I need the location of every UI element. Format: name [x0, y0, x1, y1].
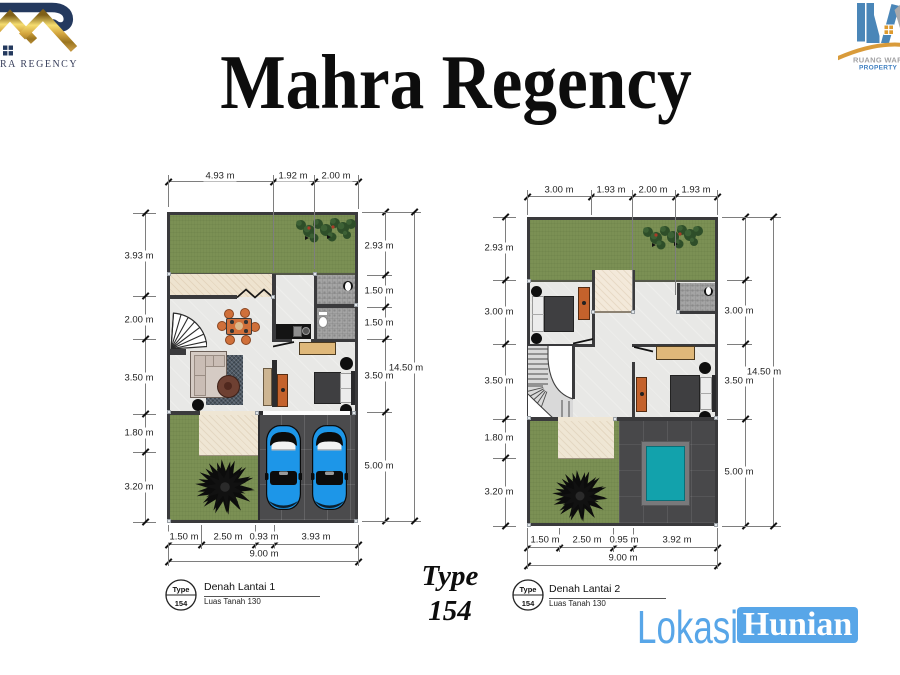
svg-text:RA REGENCY: RA REGENCY — [0, 59, 78, 70]
svg-text:PROPERTY: PROPERTY — [859, 65, 898, 72]
svg-text:154: 154 — [174, 599, 187, 608]
svg-text:Type: Type — [172, 585, 189, 594]
svg-text:Type: Type — [520, 585, 537, 594]
svg-text:154: 154 — [522, 599, 535, 608]
svg-text:RUANG WAR: RUANG WAR — [853, 56, 900, 65]
